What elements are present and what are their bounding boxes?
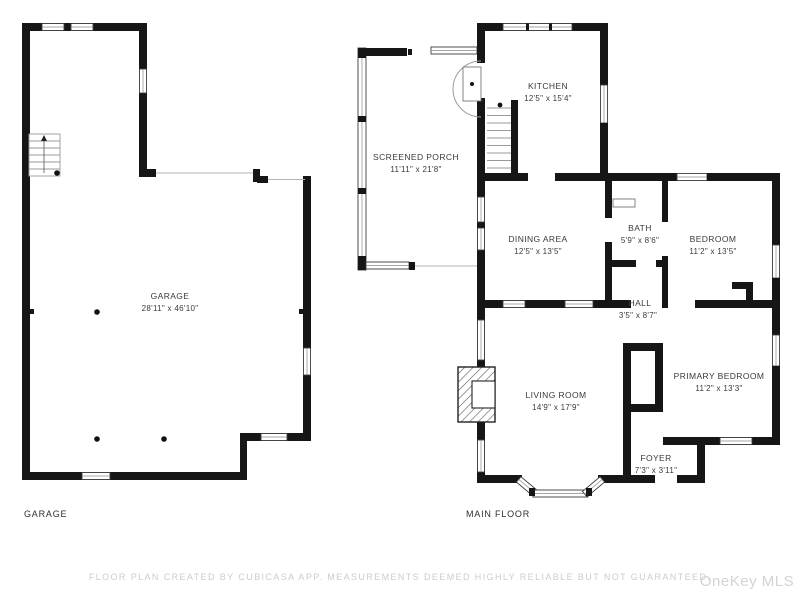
foyer-name: FOYER <box>640 453 671 463</box>
foyer-dims: 7'3" x 3'11" <box>635 466 677 475</box>
screened-porch-name: SCREENED PORCH <box>373 152 459 162</box>
footer: FLOOR PLAN CREATED BY CUBICASA APP. MEAS… <box>89 572 794 590</box>
disclaimer-text: FLOOR PLAN CREATED BY CUBICASA APP. MEAS… <box>89 572 711 582</box>
garage-room-name: GARAGE <box>151 291 190 301</box>
dining-name: DINING AREA <box>508 234 567 244</box>
hall-name: HALL <box>629 298 652 308</box>
kitchen-walls <box>477 23 608 183</box>
primary-dims: 11'2" x 13'3" <box>695 384 742 393</box>
bath-name: BATH <box>628 223 652 233</box>
garage-stairs <box>29 134 60 176</box>
floor-labels: GARAGE MAIN FLOOR <box>24 509 530 519</box>
floor-plan-page: GARAGE 28'11" x 46'10" SCREENED PORCH 11… <box>0 0 800 600</box>
garage-structure <box>22 23 311 480</box>
bedroom-name: BEDROOM <box>690 234 737 244</box>
screened-porch-dims: 11'11" x 21'8" <box>390 165 441 174</box>
main-floor-label: MAIN FLOOR <box>466 509 530 519</box>
garage-windows <box>42 24 311 480</box>
watermark-text: OneKey MLS <box>700 573 794 590</box>
bath-dims: 5'9" x 8'6" <box>621 236 659 245</box>
bedroom-dims: 11'2" x 13'5" <box>689 247 736 256</box>
living-name: LIVING ROOM <box>525 390 586 400</box>
hall-dims: 3'5" x 8'7" <box>619 311 657 320</box>
kitchen-dims: 12'5" x 15'4" <box>524 94 572 103</box>
primary-name: PRIMARY BEDROOM <box>674 371 765 381</box>
porch-door <box>453 61 481 117</box>
main-stairs <box>487 100 518 180</box>
kitchen-name: KITCHEN <box>528 81 568 91</box>
room-labels: GARAGE 28'11" x 46'10" SCREENED PORCH 11… <box>142 81 765 475</box>
bay-window <box>514 475 606 497</box>
dining-dims: 12'5" x 13'5" <box>514 247 562 256</box>
garage-floor-label: GARAGE <box>24 509 67 519</box>
living-dims: 14'9" x 17'9" <box>532 403 580 412</box>
garage-walls <box>22 23 311 480</box>
garage-room-dims: 28'11" x 46'10" <box>142 304 199 313</box>
fireplace <box>458 367 495 422</box>
garage-columns <box>30 309 303 442</box>
floor-plan-canvas: GARAGE 28'11" x 46'10" SCREENED PORCH 11… <box>0 0 800 600</box>
